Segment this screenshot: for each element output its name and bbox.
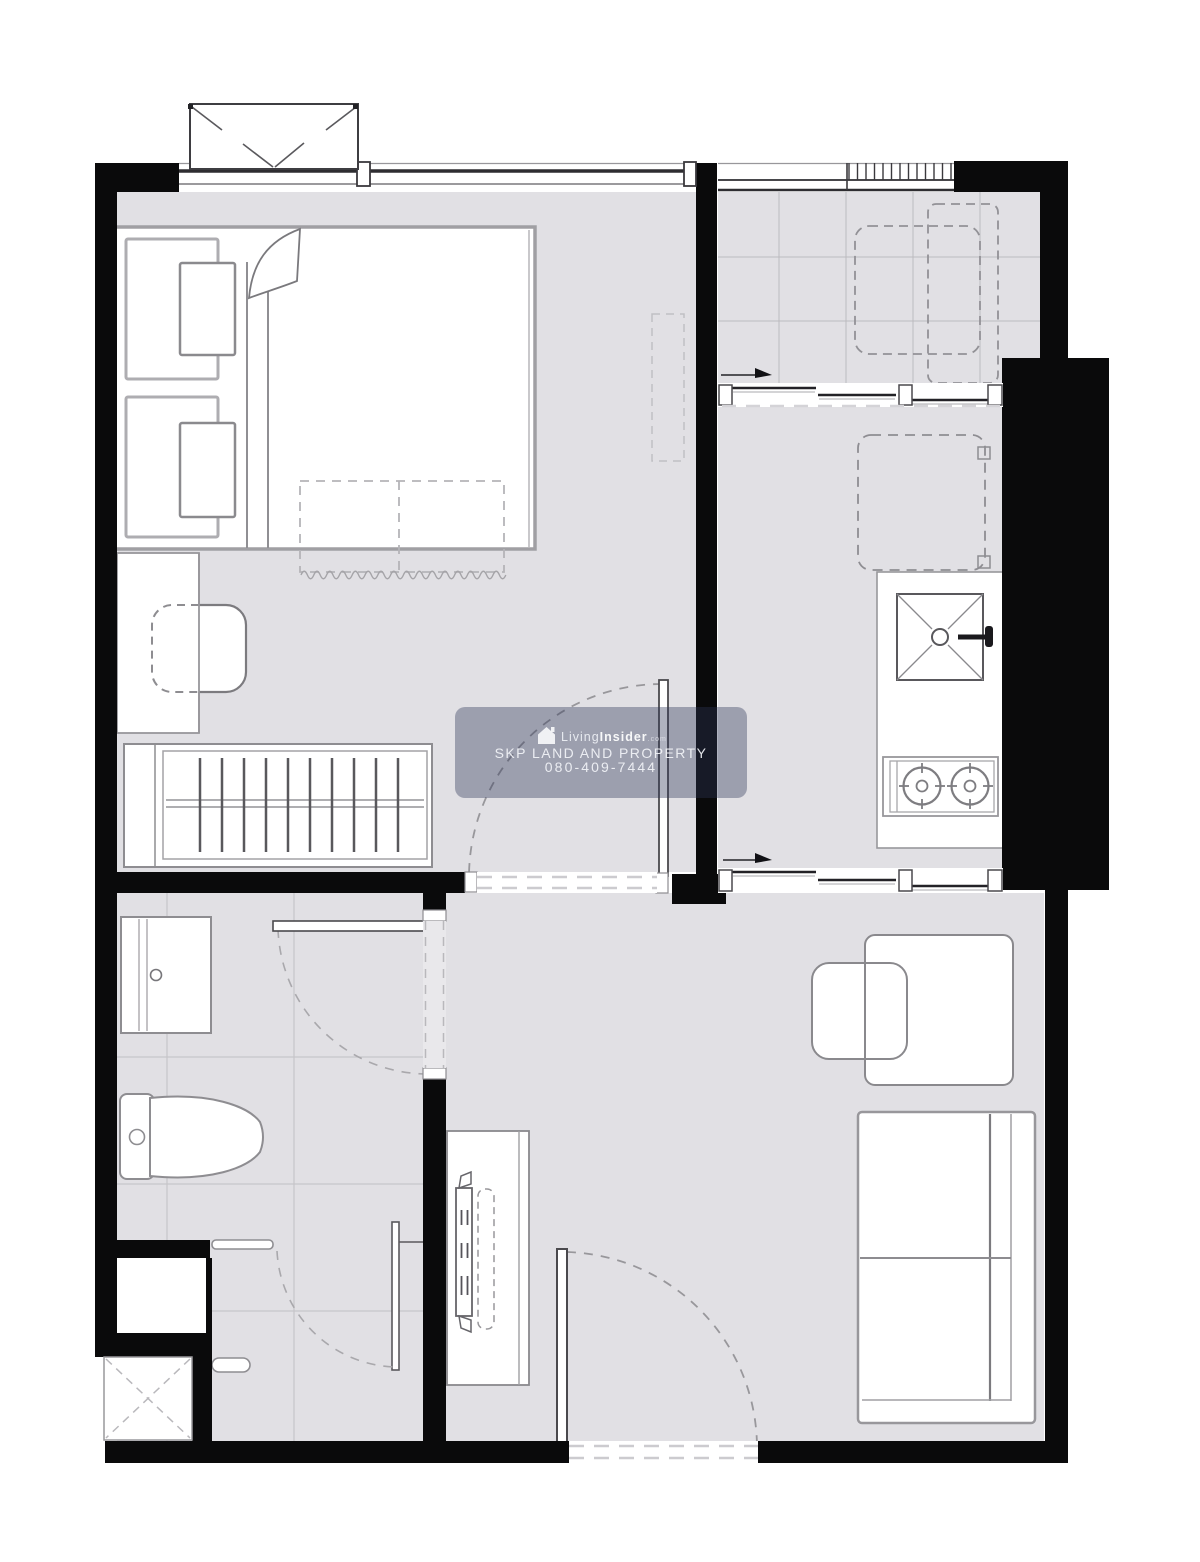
svg-text:080-409-7444: 080-409-7444	[545, 759, 657, 775]
